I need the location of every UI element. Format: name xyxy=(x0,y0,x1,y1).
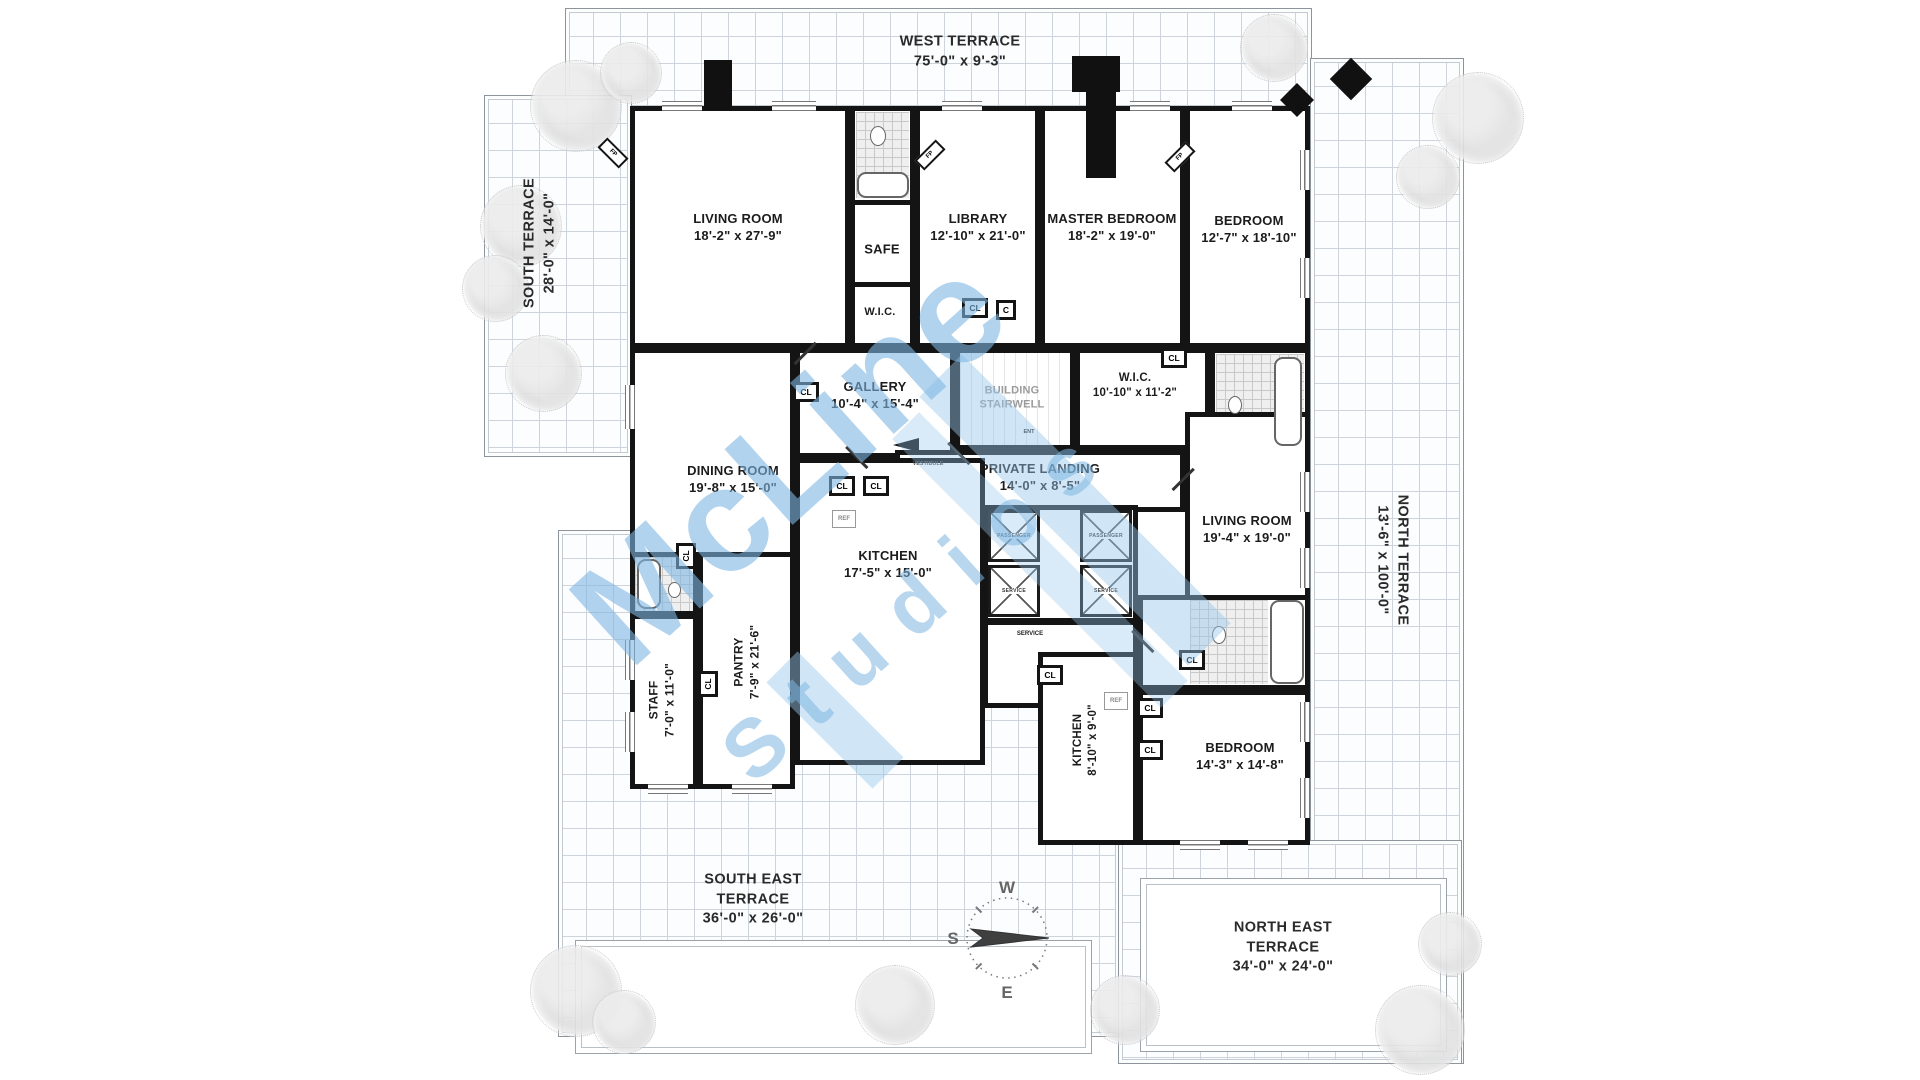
toilet-icon xyxy=(668,582,681,598)
terrace-dims: 13'-6" x 100'-0" xyxy=(1372,495,1392,626)
terrace-name: TERRACE xyxy=(1233,938,1334,958)
elevator-passenger-2: PASSENGER xyxy=(1080,510,1132,562)
terrace-label-west: WEST TERRACE 75'-0" x 9'-3" xyxy=(900,32,1021,71)
compass-tick xyxy=(1033,964,1039,970)
room-dims: 8'-10" x 9'-0" xyxy=(1086,704,1101,776)
room-dims: 10'-4" x 15'-4" xyxy=(831,396,919,413)
room-label-gallery: GALLERY 10'-4" x 15'-4" xyxy=(831,379,919,413)
tree xyxy=(1240,14,1308,82)
closet: C xyxy=(996,300,1016,320)
closet-label: CL xyxy=(703,678,713,689)
room-name: W.I.C. xyxy=(864,305,895,319)
room-name: LIVING ROOM xyxy=(1202,513,1292,530)
room-label-bedroom-1: BEDROOM 12'-7" x 18'-10" xyxy=(1201,213,1296,247)
room-label-living-room-2: LIVING ROOM 19'-4" x 19'-0" xyxy=(1202,513,1292,547)
tree xyxy=(1375,985,1465,1075)
closet: CL xyxy=(793,382,819,402)
compass-rose: W S E xyxy=(937,868,1077,1008)
closet-label: CL xyxy=(836,481,847,491)
tree xyxy=(462,255,529,322)
tree xyxy=(600,42,662,104)
terrace-label-south: SOUTH TERRACE 28'-0" x 14'-0" xyxy=(520,178,559,308)
window xyxy=(625,640,635,680)
room-dims: 10'-10" x 11'-2" xyxy=(1093,386,1177,401)
tree xyxy=(505,335,582,412)
vestibule-arrow-icon xyxy=(893,438,919,452)
room-dims: 19'-4" x 19'-0" xyxy=(1202,530,1292,547)
wall xyxy=(850,282,915,287)
window xyxy=(1232,101,1272,111)
fireplace-label: FP xyxy=(1175,152,1185,162)
room-label-library: LIBRARY 12'-10" x 21'-0" xyxy=(930,211,1025,245)
room-label-dining: DINING ROOM 19'-8" x 15'-0" xyxy=(687,463,779,497)
bathtub-icon xyxy=(857,172,909,198)
window xyxy=(1300,778,1310,818)
window xyxy=(1180,840,1220,850)
elevator-passenger-1: PASSENGER xyxy=(988,510,1040,562)
closet-label: CL xyxy=(681,550,691,561)
window xyxy=(1300,702,1310,742)
elevator-label: PASSENGER xyxy=(996,533,1032,539)
room-name: LIBRARY xyxy=(930,211,1025,228)
chimney-mass xyxy=(704,60,732,110)
closet-label: CL xyxy=(800,387,811,397)
room-dims: 19'-8" x 15'-0" xyxy=(687,480,779,497)
terrace-name: SOUTH TERRACE xyxy=(520,178,540,308)
fireplace-label: FP xyxy=(608,148,618,158)
room-label-private-landing: PRIVATE LANDING 14'-0" x 8'-5" xyxy=(980,461,1100,495)
tree xyxy=(1396,145,1460,209)
room-name: STAFF xyxy=(646,663,662,737)
window xyxy=(772,101,816,111)
room-dims: 18'-2" x 27'-9" xyxy=(693,228,783,245)
room-dims: 17'-5" x 15'-0" xyxy=(844,565,932,582)
room-label-wic-mid: W.I.C. 10'-10" x 11'-2" xyxy=(1093,371,1177,401)
room-name: STAIRWELL xyxy=(980,398,1045,412)
bathtub-icon xyxy=(637,559,661,609)
closet: CL xyxy=(698,671,718,697)
floor-plan: PASSENGER PASSENGER SERVICE SERVICE FP F… xyxy=(0,0,1920,1080)
terrace-label-north-east: NORTH EAST TERRACE 34'-0" x 24'-0" xyxy=(1233,919,1334,978)
room-label-safe: SAFE xyxy=(864,242,899,259)
terrace-label-north: NORTH TERRACE 13'-6" x 100'-0" xyxy=(1372,495,1411,626)
closet-label: CL xyxy=(1186,655,1197,665)
elevator-label: PASSENGER xyxy=(1088,533,1124,539)
toilet-icon xyxy=(1228,396,1242,414)
room-name: BUILDING xyxy=(980,384,1045,398)
window xyxy=(1300,548,1310,588)
room-label-kitchen-2: KITCHEN 8'-10" x 9'-0" xyxy=(1071,704,1101,776)
terrace-label-south-east: SOUTH EAST TERRACE 36'-0" x 26'-0" xyxy=(703,871,804,930)
bathtub-icon xyxy=(1270,600,1304,684)
room-dims: 14'-3" x 14'-8" xyxy=(1196,757,1284,774)
room-label-wic-top: W.I.C. xyxy=(864,305,895,319)
stair-ent-label: ENT xyxy=(1024,429,1035,435)
closet-label: C xyxy=(1003,305,1009,315)
elevator-service-2: SERVICE xyxy=(1080,565,1132,617)
compass-west-label: W xyxy=(999,878,1016,897)
closet-label: CL xyxy=(969,303,980,313)
closet-label: CL xyxy=(870,481,881,491)
toilet-icon xyxy=(870,126,886,146)
room-name: PANTRY xyxy=(731,625,747,700)
terrace-dims: 75'-0" x 9'-3" xyxy=(900,52,1021,72)
terrace-name: NORTH EAST xyxy=(1233,919,1334,939)
wall xyxy=(850,200,915,205)
room-dims: 12'-7" x 18'-10" xyxy=(1201,230,1296,247)
window xyxy=(662,101,702,111)
tree xyxy=(592,990,656,1054)
window xyxy=(648,784,688,794)
compass-south-label: S xyxy=(947,929,958,948)
room-name: MASTER BEDROOM xyxy=(1047,211,1176,228)
refrigerator-icon: REF xyxy=(832,510,856,528)
room-name: BEDROOM xyxy=(1201,213,1296,230)
closet: CL xyxy=(1179,650,1205,670)
closet: CL xyxy=(829,476,855,496)
window xyxy=(1300,258,1310,298)
ref-label: REF xyxy=(838,516,850,522)
window xyxy=(1300,150,1310,190)
window xyxy=(1300,472,1310,512)
tree xyxy=(1418,912,1482,976)
ref-label: REF xyxy=(1110,698,1122,704)
bathtub-icon xyxy=(1274,357,1302,446)
compass-needle-icon xyxy=(971,929,1049,947)
room-name: LIVING ROOM xyxy=(693,211,783,228)
terrace-name: NORTH TERRACE xyxy=(1392,495,1412,626)
closet: CL xyxy=(1137,740,1163,760)
terrace-dims: 28'-0" x 14'-0" xyxy=(540,178,560,308)
room-label-building-stairwell: BUILDING STAIRWELL xyxy=(980,384,1045,413)
room-name: KITCHEN xyxy=(844,548,932,565)
compass-tick xyxy=(976,907,982,913)
room-name: W.I.C. xyxy=(1093,371,1177,386)
elevator-service-1: SERVICE xyxy=(988,565,1040,617)
room-dims: 14'-0" x 8'-5" xyxy=(980,478,1100,495)
elevator-label: SERVICE xyxy=(1093,588,1119,594)
room-name: KITCHEN xyxy=(1071,704,1086,776)
fireplace-label: FP xyxy=(925,150,935,160)
tree xyxy=(855,965,935,1045)
room-label-pantry: PANTRY 7'-9" x 21'-6" xyxy=(731,625,762,700)
tree xyxy=(1090,975,1160,1045)
room-label-kitchen-1: KITCHEN 17'-5" x 15'-0" xyxy=(844,548,932,582)
window xyxy=(732,784,772,794)
room-label-master-bedroom: MASTER BEDROOM 18'-2" x 19'-0" xyxy=(1047,211,1176,245)
window xyxy=(625,385,635,429)
room-name: BEDROOM xyxy=(1196,740,1284,757)
terrace-dims: 36'-0" x 26'-0" xyxy=(703,910,804,930)
room-dims: 12'-10" x 21'-0" xyxy=(930,228,1025,245)
service-hall-label: SERVICE xyxy=(1017,631,1043,637)
window xyxy=(942,101,982,111)
vestibule-label: VESTIBULE xyxy=(913,461,944,467)
terrace-name: TERRACE xyxy=(703,890,804,910)
room-name: SAFE xyxy=(864,242,899,259)
closet-label: CL xyxy=(1168,353,1179,363)
room-dims: 7'-9" x 21'-6" xyxy=(747,625,763,700)
closet-label: CL xyxy=(1144,703,1155,713)
closet: CL xyxy=(863,476,889,496)
chimney-mass xyxy=(1086,56,1116,178)
closet: CL xyxy=(1161,348,1187,368)
closet: CL xyxy=(1137,698,1163,718)
closet: CL xyxy=(676,543,696,569)
room-label-staff: STAFF 7'-0" x 11'-0" xyxy=(646,663,677,737)
room-name: GALLERY xyxy=(831,379,919,396)
terrace-name: SOUTH EAST xyxy=(703,871,804,891)
room-kitchen-1 xyxy=(795,458,985,765)
room-dims: 18'-2" x 19'-0" xyxy=(1047,228,1176,245)
room-dims: 7'-0" x 11'-0" xyxy=(662,663,678,737)
bathroom-2-tile xyxy=(1190,600,1268,684)
room-name: PRIVATE LANDING xyxy=(980,461,1100,478)
toilet-icon xyxy=(1212,626,1226,644)
closet: CL xyxy=(1037,665,1063,685)
window xyxy=(625,712,635,752)
window xyxy=(1248,840,1288,850)
closet-label: CL xyxy=(1044,670,1055,680)
refrigerator-icon: REF xyxy=(1104,692,1128,710)
compass-east-label: E xyxy=(1001,983,1012,1002)
room-label-living-room-1: LIVING ROOM 18'-2" x 27'-9" xyxy=(693,211,783,245)
elevator-label: SERVICE xyxy=(1001,588,1027,594)
closet-label: CL xyxy=(1144,745,1155,755)
terrace-name: WEST TERRACE xyxy=(900,32,1021,52)
closet: CL xyxy=(962,298,988,318)
room-name: DINING ROOM xyxy=(687,463,779,480)
window xyxy=(1130,101,1170,111)
room-label-bedroom-2: BEDROOM 14'-3" x 14'-8" xyxy=(1196,740,1284,774)
terrace-dims: 34'-0" x 24'-0" xyxy=(1233,958,1334,978)
